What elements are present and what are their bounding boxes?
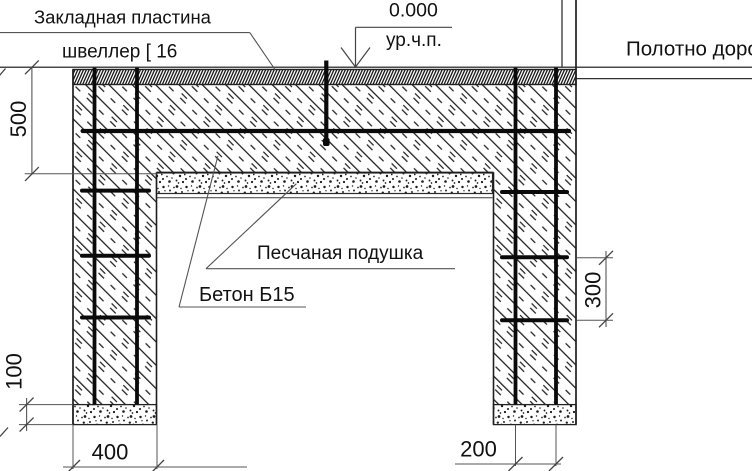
svg-text:Бетон Б15: Бетон Б15 bbox=[199, 284, 295, 306]
svg-text:Полотно дороги: Полотно дороги bbox=[626, 38, 752, 61]
svg-text:200: 200 bbox=[460, 437, 497, 462]
svg-text:Закладная пластина: Закладная пластина bbox=[34, 7, 212, 28]
svg-text:0.000: 0.000 bbox=[389, 0, 438, 22]
svg-text:300: 300 bbox=[581, 272, 606, 309]
svg-text:ур.ч.п.: ур.ч.п. bbox=[386, 30, 442, 51]
svg-text:400: 400 bbox=[92, 440, 129, 465]
svg-text:швеллер [ 16: швеллер [ 16 bbox=[62, 42, 177, 63]
svg-text:Песчаная подушка: Песчаная подушка bbox=[257, 243, 424, 264]
svg-text:500: 500 bbox=[6, 101, 31, 138]
svg-text:100: 100 bbox=[2, 353, 27, 390]
